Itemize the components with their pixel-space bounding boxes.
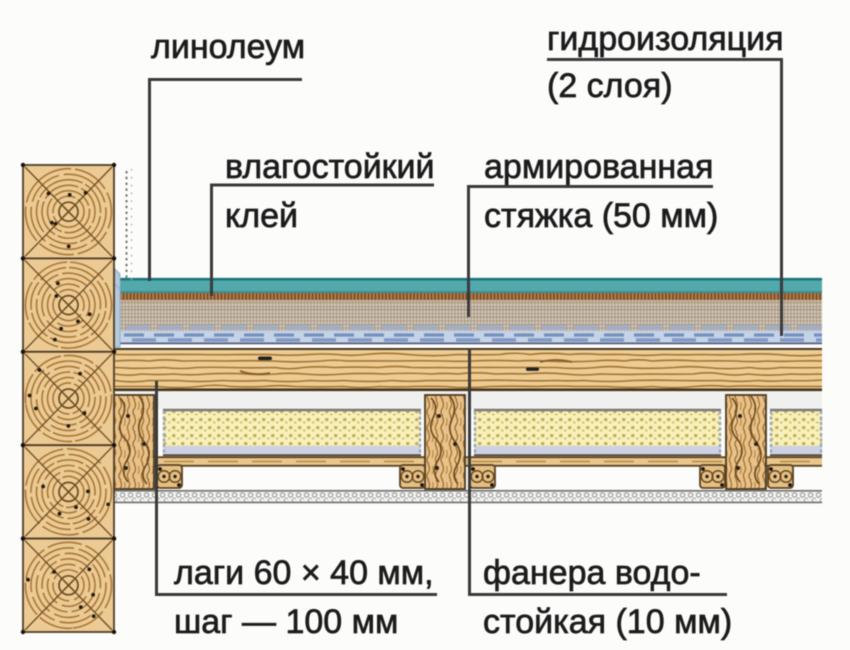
svg-text:клей: клей bbox=[225, 197, 298, 235]
svg-text:влагостойкий: влагостойкий bbox=[225, 148, 435, 186]
svg-text:стойкая (10 мм): стойкая (10 мм) bbox=[483, 603, 732, 641]
svg-text:шаг — 100 мм: шаг — 100 мм bbox=[174, 603, 398, 641]
svg-text:линолеум: линолеум bbox=[151, 28, 305, 66]
svg-text:стяжка (50 мм): стяжка (50 мм) bbox=[484, 197, 718, 235]
svg-text:армированная: армированная bbox=[484, 148, 713, 186]
svg-text:фанера водо-: фанера водо- bbox=[483, 554, 701, 592]
svg-text:(2 слоя): (2 слоя) bbox=[547, 67, 673, 105]
svg-text:гидроизоляция: гидроизоляция bbox=[547, 20, 784, 58]
svg-text:лаги 60 × 40 мм,: лаги 60 × 40 мм, bbox=[174, 554, 434, 592]
